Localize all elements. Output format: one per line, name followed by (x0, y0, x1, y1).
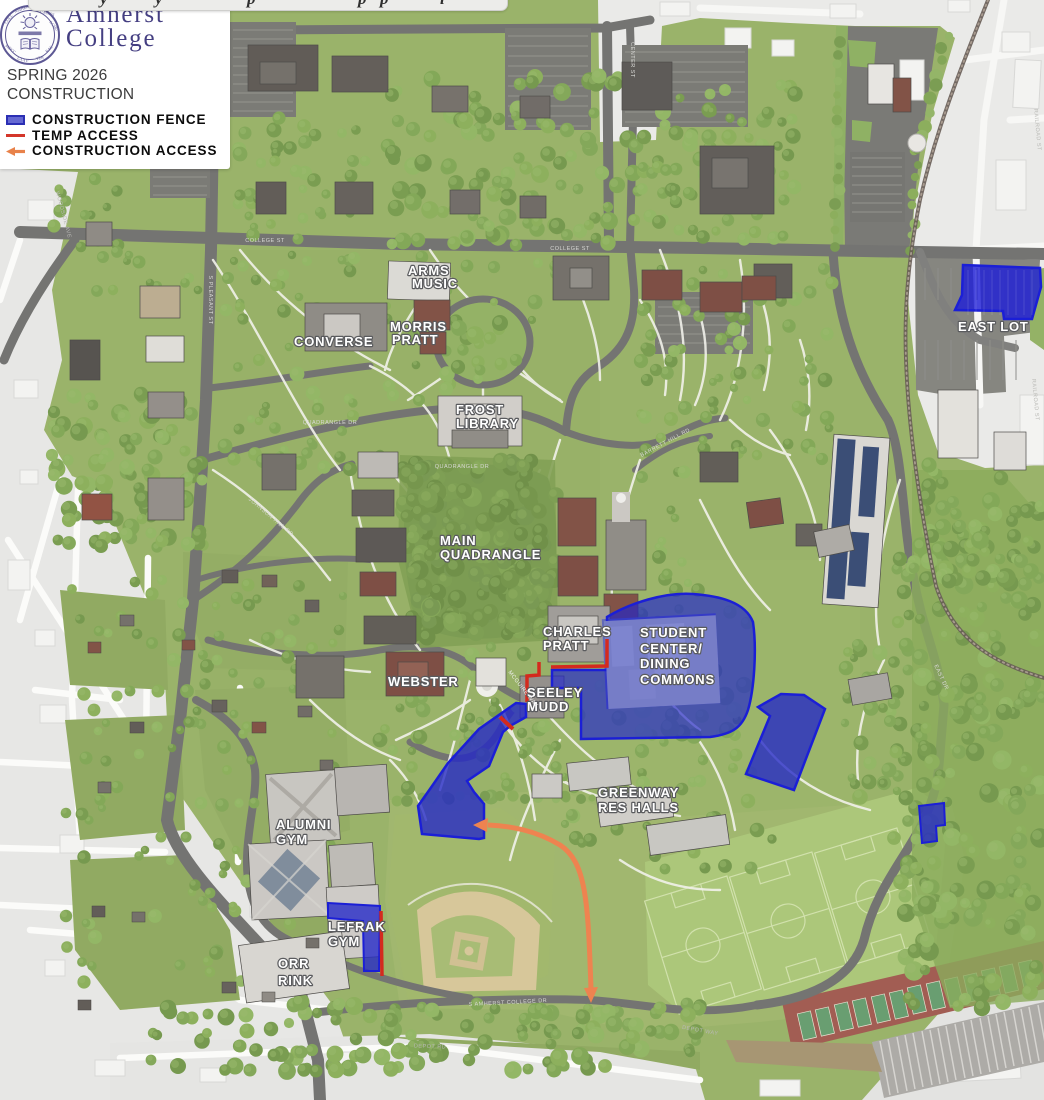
svg-text:RINK: RINK (278, 973, 313, 988)
svg-text:COLLEGE ST: COLLEGE ST (245, 238, 285, 244)
svg-text:STUDENT: STUDENT (640, 625, 707, 640)
svg-text:GYM: GYM (276, 832, 308, 847)
svg-text:QUADRANGLE DR: QUADRANGLE DR (303, 420, 357, 426)
svg-text:ORR: ORR (278, 956, 309, 971)
svg-text:COLLEGE ST: COLLEGE ST (550, 246, 590, 252)
svg-text:COMMONS: COMMONS (640, 672, 715, 687)
svg-text:QUADRANGLE: QUADRANGLE (440, 547, 541, 562)
svg-text:CONVERSE: CONVERSE (294, 334, 373, 349)
svg-text:ALUMNI: ALUMNI (276, 817, 331, 832)
svg-text:GREENWAY: GREENWAY (598, 785, 679, 800)
svg-text:WEBSTER: WEBSTER (388, 674, 459, 689)
svg-text:S PLEASANT ST: S PLEASANT ST (207, 276, 213, 325)
svg-text:QUADRANGLE DR: QUADRANGLE DR (435, 464, 489, 470)
svg-text:LIBRARY: LIBRARY (456, 416, 519, 431)
svg-text:LEFRAK: LEFRAK (328, 919, 386, 934)
svg-text:CHARLES: CHARLES (543, 624, 611, 639)
svg-text:CENTER ST: CENTER ST (629, 42, 635, 78)
svg-text:PRATT: PRATT (543, 638, 589, 653)
svg-text:DINING: DINING (640, 656, 690, 671)
svg-text:SEELEY: SEELEY (527, 685, 583, 700)
svg-text:PRATT: PRATT (392, 332, 438, 347)
svg-text:FROST: FROST (456, 402, 504, 417)
svg-text:EAST LOT: EAST LOT (958, 319, 1029, 334)
svg-text:GYM: GYM (328, 934, 360, 949)
svg-text:MUSIC: MUSIC (412, 276, 458, 291)
svg-text:DEPOT RD: DEPOT RD (414, 1043, 447, 1050)
svg-text:CENTER/: CENTER/ (640, 641, 703, 656)
svg-text:RES HALLS: RES HALLS (598, 800, 679, 815)
svg-text:MAIN: MAIN (440, 533, 476, 548)
